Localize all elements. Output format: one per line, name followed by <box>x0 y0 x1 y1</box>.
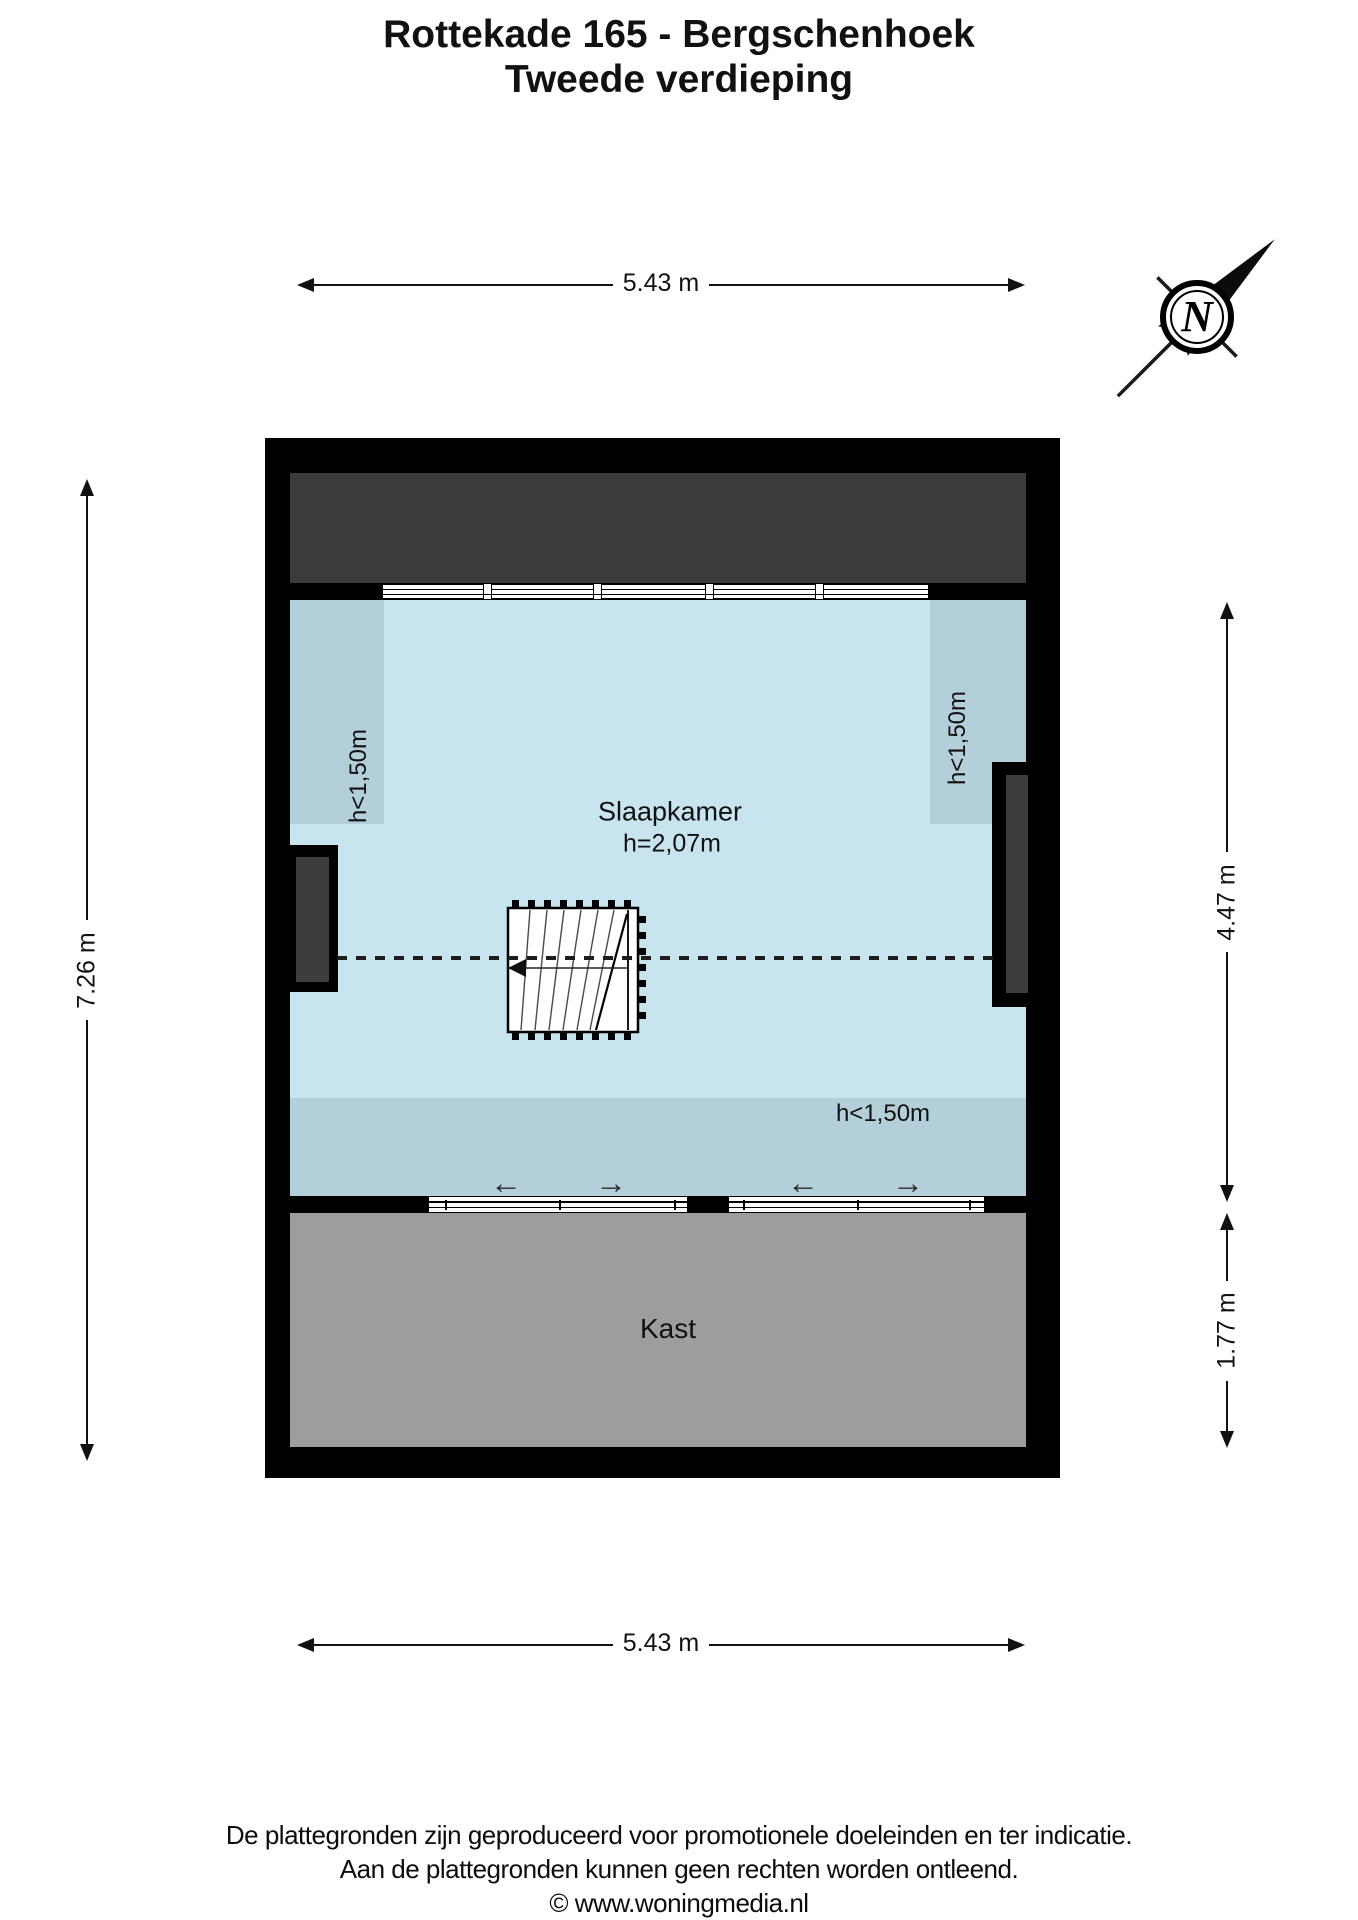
window-mullion <box>705 583 714 600</box>
page-title: Rottekade 165 - Bergschenhoek <box>0 12 1358 58</box>
arrowhead-down-icon <box>80 1444 94 1461</box>
dimension-bottom: 5.43 m <box>297 1631 1025 1659</box>
dimension-right-lower-label: 1.77 m <box>1213 1292 1242 1368</box>
arrowhead-left-icon <box>297 1638 314 1652</box>
footer-line-2: Aan de plattegronden kunnen geen rechten… <box>0 1852 1358 1886</box>
dimension-left: 7.26 m <box>74 479 100 1461</box>
footer-line-3: © www.woningmedia.nl <box>0 1886 1358 1920</box>
sliding-door-track <box>428 1196 688 1213</box>
arrowhead-up-icon <box>1220 1213 1234 1230</box>
arrowhead-up-icon <box>80 479 94 496</box>
dimension-bottom-label: 5.43 m <box>623 1629 699 1658</box>
compass-letter: N <box>1180 292 1215 341</box>
bedroom-height-label: h=2,07m <box>623 830 721 859</box>
compass-north-icon: N <box>1085 205 1310 430</box>
low-height-label-right: h<1,50m <box>944 691 972 785</box>
arrowhead-left-icon <box>297 278 314 292</box>
arrowhead-down-icon <box>1220 1431 1234 1448</box>
window-mullion <box>483 583 492 600</box>
arrowhead-right-icon <box>1008 278 1025 292</box>
window-strip <box>381 583 930 600</box>
page-subtitle: Tweede verdieping <box>0 58 1358 102</box>
dimension-right-lower: 1.77 m <box>1214 1213 1240 1448</box>
floorplan: Slaapkamer h=2,07m h<1,50m h<1,50m h<1,5… <box>265 438 1060 1478</box>
footer-line-1: De plattegronden zijn geproduceerd voor … <box>0 1818 1358 1852</box>
dimension-right-upper-label: 4.47 m <box>1213 864 1242 940</box>
arrowhead-up-icon <box>1220 602 1234 619</box>
title-block: Rottekade 165 - Bergschenhoek Tweede ver… <box>0 12 1358 102</box>
window-mullion <box>593 583 602 600</box>
right-wall-panel-inset <box>1006 775 1028 993</box>
section-dashed-line <box>337 956 993 960</box>
footer: De plattegronden zijn geproduceerd voor … <box>0 1818 1358 1920</box>
arrowhead-right-icon <box>1008 1638 1025 1652</box>
sliding-door-track <box>728 1196 985 1213</box>
window-mullion <box>815 583 824 600</box>
dimension-top-label: 5.43 m <box>623 269 699 298</box>
staircase <box>500 900 646 1040</box>
dimension-right-upper: 4.47 m <box>1214 602 1240 1202</box>
left-wall-panel-inset <box>296 857 329 982</box>
arrowhead-down-icon <box>1220 1185 1234 1202</box>
floorplan-page: Rottekade 165 - Bergschenhoek Tweede ver… <box>0 0 1358 1920</box>
low-height-label-bottom: h<1,50m <box>836 1100 930 1128</box>
low-height-label-left: h<1,50m <box>345 729 373 823</box>
dimension-left-label: 7.26 m <box>73 932 102 1008</box>
closet-label: Kast <box>640 1313 696 1345</box>
dimension-top: 5.43 m <box>297 271 1025 299</box>
roof-void-area <box>290 473 1026 583</box>
bedroom-label: Slaapkamer <box>598 797 742 828</box>
